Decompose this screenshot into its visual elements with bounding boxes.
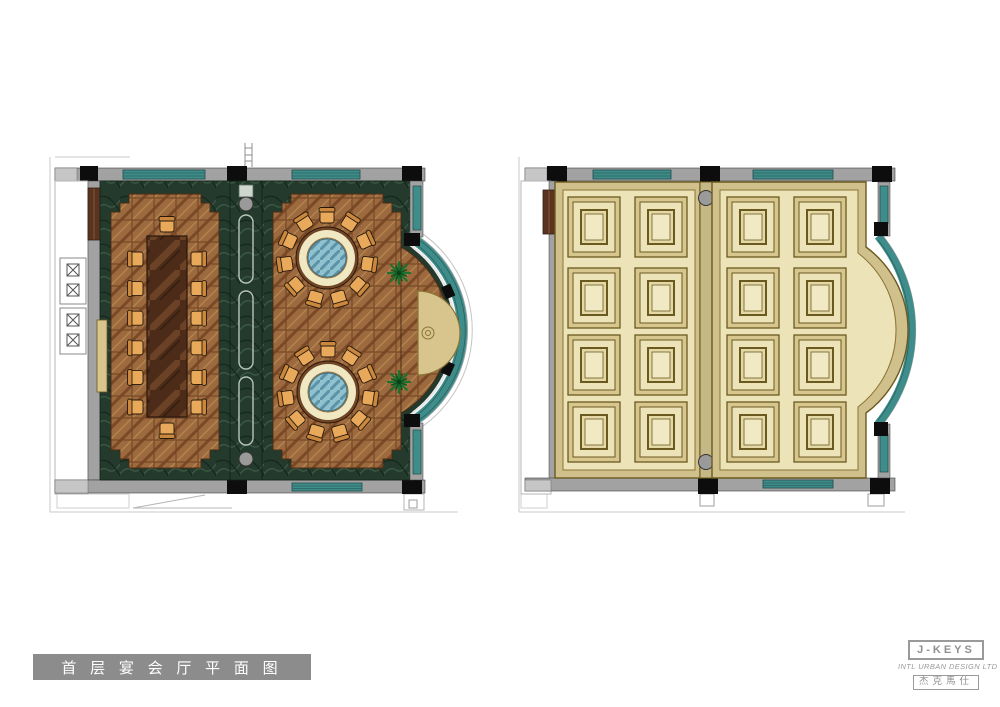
ceiling-top-wall <box>525 166 895 182</box>
plant-icon <box>388 371 410 393</box>
ceiling-divider <box>699 182 714 478</box>
banquet-room <box>262 181 472 480</box>
plant-icon <box>388 262 410 284</box>
ceiling-bottom-wall <box>525 478 895 494</box>
floor-plan-left-corridor <box>55 181 103 494</box>
side-console <box>97 320 107 392</box>
window-strip <box>763 480 833 488</box>
floor-plan-top-wall <box>55 166 425 182</box>
chair <box>159 217 175 233</box>
coffer-panel <box>635 402 687 462</box>
coffer-panel <box>568 268 620 328</box>
coffer-panel <box>794 402 846 462</box>
chair <box>277 389 295 407</box>
window-strip <box>292 483 362 491</box>
ceiling-left-corridor <box>521 181 559 494</box>
chair <box>191 281 207 297</box>
chair <box>128 369 144 385</box>
coffer-panel <box>635 335 687 395</box>
chair <box>128 340 144 356</box>
chair <box>361 255 379 273</box>
coffer-panel <box>635 268 687 328</box>
floor-plan <box>50 143 472 512</box>
chair <box>191 310 207 326</box>
conference-table <box>147 236 187 417</box>
chair <box>276 255 294 273</box>
chair <box>191 251 207 267</box>
riser-symbol <box>245 143 252 167</box>
logo-subtitle: INTL URBAN DESIGN LTD <box>898 663 994 671</box>
plans-canvas <box>0 0 1000 707</box>
coffer-panel <box>635 197 687 257</box>
chair <box>159 423 175 439</box>
drawing-sheet: 首 层 宴 会 厅 平 面 图 J-KEYS INTL URBAN DESIGN… <box>0 0 1000 707</box>
chair <box>191 340 207 356</box>
coffer-panel <box>568 402 620 462</box>
chair <box>128 310 144 326</box>
chair <box>128 399 144 415</box>
company-logo: J-KEYS INTL URBAN DESIGN LTD 杰克馬仕 <box>898 640 994 690</box>
coffer-panel <box>727 268 779 328</box>
drawing-title-bar: 首 层 宴 会 厅 平 面 图 <box>33 654 311 680</box>
marble-gallery <box>230 181 262 480</box>
chair <box>128 281 144 297</box>
chair <box>128 251 144 267</box>
coffer-panel <box>568 335 620 395</box>
chair <box>191 399 207 415</box>
coffer-panel <box>794 197 846 257</box>
coffer-panel <box>794 335 846 395</box>
coffer-panel <box>727 335 779 395</box>
logo-chinese-name: 杰克馬仕 <box>913 675 979 689</box>
chair <box>320 342 336 358</box>
coffer-panel <box>727 197 779 257</box>
coffer-panel <box>794 268 846 328</box>
chair <box>191 369 207 385</box>
coffer-panel <box>727 402 779 462</box>
drawing-title: 首 层 宴 会 厅 平 面 图 <box>61 657 282 678</box>
chair <box>362 389 380 407</box>
chair <box>319 208 335 224</box>
ceiling-plan <box>519 157 916 512</box>
coffer-panel <box>568 197 620 257</box>
logo-brand-text: J-KEYS <box>908 640 984 660</box>
